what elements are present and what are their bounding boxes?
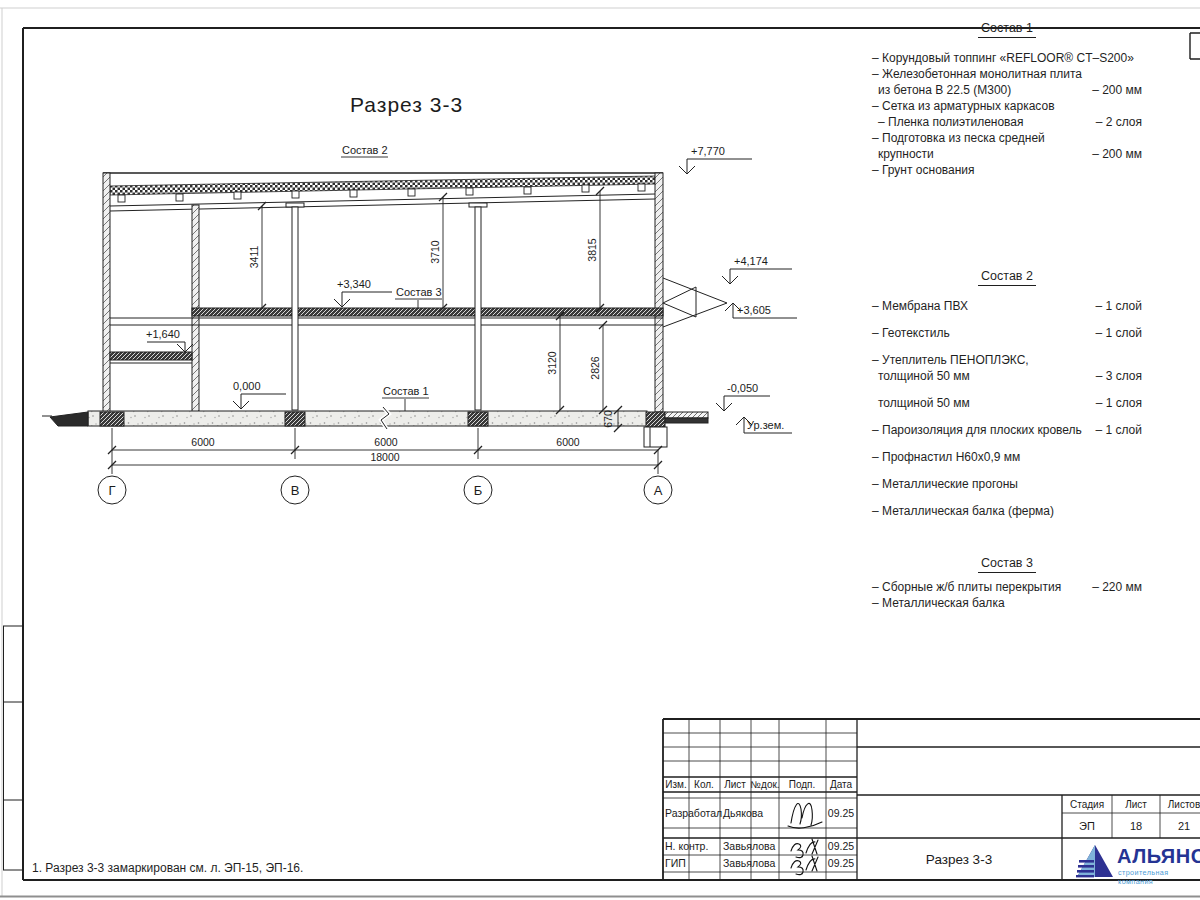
dim-2826: 2826	[589, 356, 601, 380]
elev-roof: +7,770	[691, 145, 725, 157]
apron	[665, 412, 708, 418]
list-item: – Металлическая балка (ферма)	[872, 503, 1142, 519]
tb-header-izm: Изм.	[665, 779, 686, 790]
upper-slab	[192, 308, 663, 316]
elev-floor: 0,000	[233, 380, 261, 392]
list-item: – Подготовка из песка средней крупности–…	[872, 130, 1142, 162]
axis-b: Б	[474, 483, 483, 498]
tb-sheets-value: 21	[1178, 820, 1190, 832]
tb-header-ndok: №док.	[750, 779, 779, 790]
composition-2-list: Состав 2 – Мембрана ПВХ– 1 слой – Геотек…	[872, 268, 1142, 530]
signature-scribble	[788, 803, 822, 828]
tb-doc-title: Разрез 3-3	[926, 852, 992, 867]
axis-g: Г	[108, 483, 115, 498]
composition-3-title: Состав 3	[872, 555, 1142, 573]
tb-row-name: Дьякова	[723, 807, 763, 819]
tb-row-role: Разработал	[665, 807, 722, 819]
elev-canopy-bottom: +3,605	[737, 304, 771, 316]
alliance-logo-icon	[1076, 845, 1113, 877]
comp1-ref-label: Состав 1	[383, 385, 429, 397]
drawing-title: Разрез 3-3	[350, 93, 463, 116]
building-section	[42, 173, 727, 447]
list-item: – Геотекстиль– 1 слой	[872, 325, 1142, 341]
dim-span2: 6000	[374, 436, 398, 448]
dim-3411: 3411	[248, 246, 260, 269]
comp3-ref-label: Состав 3	[396, 286, 442, 298]
alliance-logo-name: АЛЬЯНС	[1117, 845, 1200, 868]
ramp	[50, 412, 88, 426]
elev-ground: Ур.зем.	[747, 419, 784, 431]
tb-row-name: Завьялова	[723, 840, 775, 852]
alliance-logo-subtitle: строительная компания	[1118, 868, 1200, 886]
elev-canopy-top: +4,174	[734, 255, 768, 267]
dim-3815: 3815	[586, 238, 598, 262]
tb-header-kol: Кол.	[694, 779, 714, 790]
list-item: – Сборные ж/б плиты перекрытия– 220 мм	[872, 579, 1142, 595]
list-item: – Металлические прогоны	[872, 476, 1142, 492]
tb-row-date: 09.25	[828, 857, 854, 869]
list-item: – Утеплитель ПЕНОПЛЭКС, толщиной 50 мм– …	[872, 352, 1142, 384]
list-item: – Корундовый топпинг «REFLOOR® CT–S200»	[872, 50, 1142, 66]
sheet-note: 1. Разрез 3-3 замаркирован см. л. ЭП-15,…	[32, 861, 303, 875]
wall-left	[103, 173, 110, 412]
list-item: – Сетка из арматурных каркасов	[872, 98, 1142, 114]
list-item: толщиной 50 мм– 1 слоя	[872, 395, 1142, 411]
tb-row-role: ГИП	[665, 857, 686, 869]
columns	[286, 203, 487, 410]
axis-v: В	[291, 483, 300, 498]
canopy-truss	[663, 278, 727, 327]
dim-3710: 3710	[429, 240, 441, 264]
composition-1-list: Состав 1 – Корундовый топпинг «REFLOOR® …	[872, 20, 1142, 178]
comp2-ref-label: Состав 2	[342, 144, 388, 156]
list-item: – Пленка полиэтиленовая– 2 слоя	[872, 114, 1142, 130]
dim-span3: 6000	[556, 436, 580, 448]
tb-stage-value: ЭП	[1079, 820, 1095, 832]
tb-header-data: Дата	[830, 779, 852, 790]
tb-sheets-header: Листов	[1168, 799, 1200, 810]
composition-2-title: Состав 2	[872, 268, 1142, 286]
tb-row-date: 09.25	[828, 840, 854, 852]
list-item: – Железобетонная монолитная плита из бет…	[872, 66, 1142, 98]
composition-3-list: Состав 3 – Сборные ж/б плиты перекрытия–…	[872, 555, 1142, 611]
side-stamp	[4, 626, 24, 870]
tb-row-name: Завьялова	[723, 857, 775, 869]
dim-3120: 3120	[546, 351, 558, 375]
dim-total: 18000	[370, 451, 399, 463]
dim-670: 670	[602, 410, 614, 428]
axis-bubbles	[98, 476, 672, 504]
drawing-sheet: Разрез 3-3 Состав 2 Состав 3 Состав 1 +7…	[0, 0, 1200, 900]
landing-slab	[110, 352, 192, 360]
tb-row-role: Н. контр.	[665, 840, 708, 852]
tb-header-podp: Подп.	[789, 779, 816, 790]
wall-right	[655, 173, 663, 412]
list-item: – Пароизоляция для плоских кровель– 1 сл…	[872, 422, 1142, 438]
elev-apron: -0,050	[727, 382, 758, 394]
tb-sheet-header: Лист	[1125, 799, 1147, 810]
tb-row-date: 09.25	[828, 807, 854, 819]
tb-sheet-value: 18	[1130, 820, 1142, 832]
elev-landing: +1,640	[146, 328, 180, 340]
dim-span1: 6000	[191, 436, 215, 448]
axis-a: А	[654, 483, 663, 498]
list-item: – Мембрана ПВХ– 1 слой	[872, 298, 1142, 314]
list-item: – Металлическая балка	[872, 595, 1142, 611]
list-item: – Грунт основания	[872, 162, 1142, 178]
elev-slab: +3,340	[337, 278, 371, 290]
composition-1-title: Состав 1	[872, 20, 1142, 38]
list-item: – Профнастил Н60х0,9 мм	[872, 449, 1142, 465]
tb-stage-header: Стадия	[1070, 799, 1104, 810]
floor-slab	[88, 411, 647, 426]
drawing-text: Разрез 3-3 Состав 2 Состав 3 Состав 1 +7…	[108, 93, 784, 498]
signatures	[788, 803, 822, 874]
corner-box	[1190, 33, 1200, 59]
tb-header-list: Лист	[724, 779, 746, 790]
